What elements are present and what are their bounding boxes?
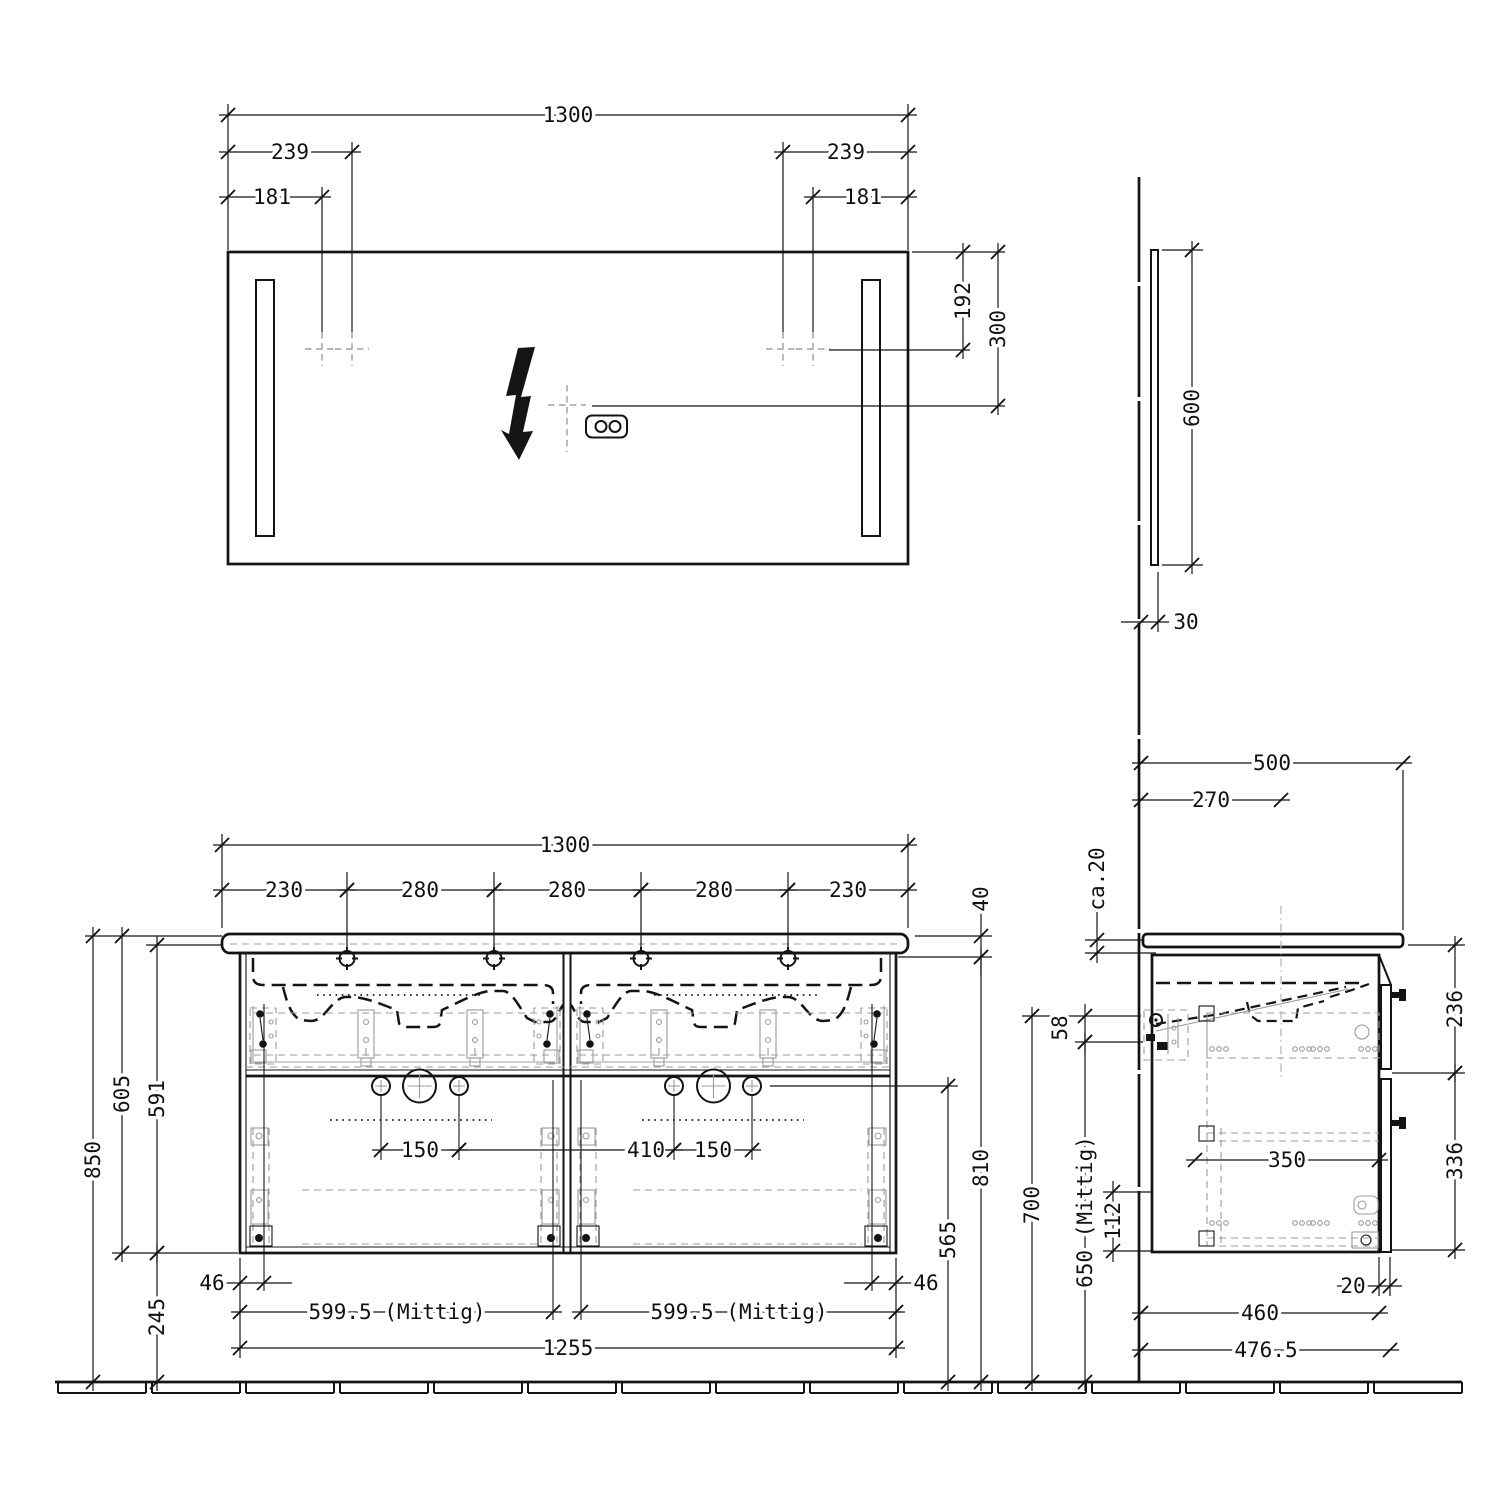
- side-cabinet-body: [1152, 955, 1379, 1252]
- dim-height-cabinet-label: 591: [145, 1080, 169, 1118]
- wall-mounting-bracket: [1144, 1010, 1188, 1060]
- drawer-fitting: [538, 1128, 560, 1246]
- dim-lamp-inner-left-label: 181: [253, 185, 291, 209]
- vanity-front-view: [222, 934, 908, 1320]
- fixing-hole-icon: [665, 1077, 683, 1095]
- drain-hole-icon: [697, 1070, 730, 1103]
- dim-cabinet-top: 810: [969, 948, 993, 1391]
- technical-drawing-page: 1300239181239181192300600301300230280280…: [0, 0, 1500, 1500]
- mirror-front-view: [228, 252, 908, 564]
- drawer-fitting: [865, 1128, 887, 1246]
- dim-fitting-height: 700: [1020, 1007, 1044, 1391]
- dim-vanity-width-label: 1300: [540, 833, 591, 857]
- mirror-side-panel: [1151, 250, 1158, 565]
- dim-basin-center-right: 599.5 (Mittig): [572, 1300, 905, 1324]
- dim-hinge-left-label: 46: [199, 1271, 224, 1295]
- fixing-hole-icon: [372, 1077, 390, 1095]
- lamp-position-marker-icon: [766, 332, 800, 366]
- dim-lamp-outer-right: 239: [774, 140, 917, 164]
- dim-floor-gap-label: 245: [145, 1298, 169, 1336]
- dim-depth-center-label: 270: [1192, 788, 1230, 812]
- dim-lower-drawer: 336: [1443, 1064, 1467, 1259]
- dim-seg-5-label: 230: [829, 878, 867, 902]
- dim-lamp-inner-right: 181: [804, 185, 917, 209]
- drawing-geometry: [55, 104, 1465, 1393]
- dim-lamp-inner-left: 181: [219, 185, 331, 209]
- dim-lamp-height: 192: [951, 243, 975, 359]
- drawer-rail-bracket: [760, 1010, 776, 1066]
- mirror-side-view: [1139, 177, 1158, 1382]
- lamp-position-marker-icon: [335, 332, 369, 366]
- dim-depth-with-front-label: 476.5: [1234, 1338, 1297, 1362]
- dim-seg-3: 280: [485, 878, 650, 902]
- dim-bottom-fitting-label: 112: [1101, 1202, 1125, 1240]
- basin-outline-right: [571, 958, 881, 1027]
- drawer-rail-bracket: [651, 1010, 667, 1066]
- dim-basin-center-right-label: 599.5 (Mittig): [650, 1300, 827, 1324]
- dim-drain-center-label: 650 (Mittig): [1073, 1136, 1097, 1288]
- dim-seg-3-label: 280: [548, 878, 586, 902]
- dim-lamp-inner-right-label: 181: [844, 185, 882, 209]
- power-socket-icon: [586, 416, 627, 438]
- dim-lamp-height-label: 192: [951, 282, 975, 320]
- dim-depth-carcass-label: 460: [1241, 1301, 1279, 1325]
- mounting-point-icon: [483, 947, 505, 970]
- dim-mirror-width-label: 1300: [543, 103, 594, 127]
- dim-hinge-right-label: 46: [913, 1271, 938, 1295]
- dimension-annotations: 1300239181239181192300600301300230280280…: [81, 103, 1467, 1391]
- lower-drawer-front: [1381, 1079, 1391, 1252]
- dim-fitting-offset-label: 58: [1048, 1015, 1072, 1040]
- dim-depth-total-label: 500: [1253, 751, 1291, 775]
- dim-seg-1-label: 230: [265, 878, 303, 902]
- drawer-rail-bracket: [358, 1010, 374, 1066]
- dim-floor-gap: 245: [145, 1244, 169, 1391]
- dim-depth-carcass: 460: [1132, 1301, 1388, 1325]
- dim-upper-drawer-label: 236: [1443, 990, 1467, 1028]
- dim-lamp-outer-right-label: 239: [827, 140, 865, 164]
- socket-position-marker-icon: [548, 385, 586, 452]
- dim-hole-left-label: 150: [401, 1138, 439, 1162]
- dim-lower-drawer-label: 336: [1443, 1142, 1467, 1180]
- mounting-point-icon: [336, 947, 358, 970]
- mounting-point-icon: [777, 947, 799, 970]
- drawer-rail-bracket: [467, 1010, 483, 1066]
- dim-lamp-outer-left-label: 239: [271, 140, 309, 164]
- dim-height-basin-top: 605: [110, 927, 134, 1262]
- handle-screw-icon: [1391, 989, 1406, 1001]
- dim-socket-height: 300: [986, 243, 1010, 415]
- dim-height-total: 850: [81, 927, 105, 1391]
- fixing-hole-icon: [450, 1077, 468, 1095]
- washbasin-top: [222, 934, 908, 953]
- bathroom-vanity-technical-drawing: 1300239181239181192300600301300230280280…: [0, 0, 1500, 1500]
- electrical-lightning-bolt-icon: [501, 347, 535, 460]
- dim-mirror-height: 600: [1180, 241, 1204, 574]
- dim-basin-thickness-label: 40: [969, 886, 993, 911]
- dim-vanity-width: 1300: [213, 833, 917, 857]
- dim-hole-right-label: 150: [694, 1138, 732, 1162]
- vanity-side-view: [1143, 906, 1406, 1252]
- dim-front-thickness-label: 20: [1340, 1274, 1365, 1298]
- dim-mirror-depth: 30: [1121, 610, 1199, 634]
- dim-cabinet-width: 1255: [231, 1336, 905, 1360]
- dim-socket-height-label: 300: [986, 310, 1010, 348]
- dim-basin-center-left-label: 599.5 (Mittig): [308, 1300, 485, 1324]
- dim-depth-center: 270: [1132, 788, 1290, 812]
- dim-hole-right: 150: [665, 1138, 761, 1162]
- dim-hole-mid: 410: [450, 1138, 683, 1162]
- dim-wall-gap: ca.20: [1085, 847, 1109, 963]
- lamp-position-marker-icon: [305, 332, 339, 366]
- dim-height-total-label: 850: [81, 1141, 105, 1179]
- dim-seg-4-label: 280: [695, 878, 733, 902]
- dim-hinge-right: 46: [844, 1271, 939, 1295]
- dim-cabinet-top-label: 810: [969, 1149, 993, 1187]
- dim-fitting-offset: 58: [1048, 1004, 1092, 1054]
- dim-seg-5: 230: [779, 878, 917, 902]
- dim-cabinet-width-label: 1255: [543, 1336, 594, 1360]
- dim-seg-4: 280: [632, 878, 797, 902]
- dim-wall-gap-label: ca.20: [1085, 847, 1109, 910]
- dim-mirror-height-label: 600: [1180, 389, 1204, 427]
- dim-upper-drawer: 236: [1443, 936, 1467, 1082]
- mounting-point-icon: [630, 947, 652, 970]
- dim-height-cabinet: 591: [145, 936, 169, 1262]
- dim-drawer-split: 565: [936, 1077, 960, 1391]
- lamp-position-marker-icon: [796, 332, 830, 366]
- dim-front-thickness: 20: [1337, 1274, 1402, 1298]
- dim-seg-2: 280: [338, 878, 503, 902]
- drain-hole-icon: [403, 1070, 436, 1103]
- led-strip-left-icon: [256, 280, 274, 536]
- dim-fitting-height-label: 700: [1020, 1186, 1044, 1224]
- cabinet-body: [240, 953, 896, 1253]
- dim-height-basin-top-label: 605: [110, 1075, 134, 1113]
- dim-hole-mid-label: 410: [627, 1138, 665, 1162]
- dim-seg-2-label: 280: [401, 878, 439, 902]
- dim-lamp-outer-left: 239: [219, 140, 361, 164]
- dim-hinge-left: 46: [199, 1271, 292, 1295]
- dim-depth-with-front: 476.5: [1132, 1338, 1399, 1362]
- extension-lines: [85, 104, 1465, 1358]
- dim-drawer-depth-label: 350: [1268, 1148, 1306, 1172]
- basin-outline-left: [253, 958, 553, 1004]
- dim-bottom-fitting: 112: [1101, 1181, 1125, 1262]
- fixing-hole-icon: [743, 1077, 761, 1095]
- upper-drawer-front: [1381, 985, 1391, 1069]
- led-strip-right-icon: [862, 280, 880, 536]
- washbasin-top-side: [1143, 934, 1403, 947]
- dim-seg-1: 230: [213, 878, 356, 902]
- drawer-fitting: [250, 1128, 272, 1246]
- dim-drawer-depth: 350: [1186, 1148, 1388, 1172]
- floor-line: [55, 1382, 1462, 1393]
- drawer-fitting: [577, 1128, 599, 1246]
- mirror-frame: [228, 252, 908, 564]
- dim-basin-center-left: 599.5 (Mittig): [231, 1300, 562, 1324]
- dim-mirror-depth-label: 30: [1173, 610, 1198, 634]
- dim-drawer-split-label: 565: [936, 1221, 960, 1259]
- dim-depth-total: 500: [1132, 751, 1412, 775]
- dim-mirror-width: 1300: [219, 103, 917, 127]
- dim-drain-center: 650 (Mittig): [1073, 1033, 1097, 1391]
- handle-screw-icon: [1391, 1117, 1406, 1129]
